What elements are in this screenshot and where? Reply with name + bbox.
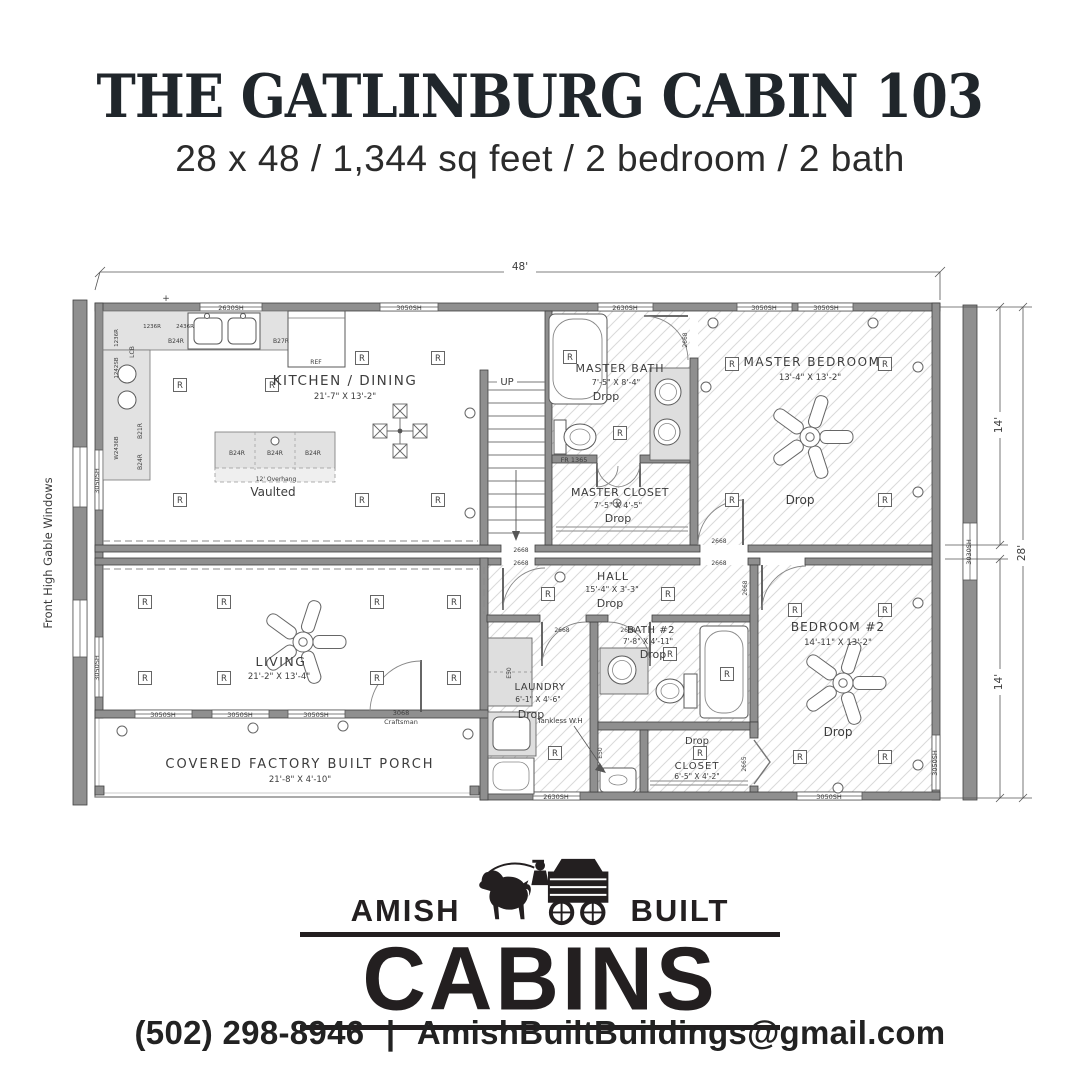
room-closet2-size: 6'-5" X 4'-2" xyxy=(674,772,719,781)
door-label: 2668 xyxy=(711,560,726,567)
room-kitchen-name: KITCHEN / DINING xyxy=(273,373,418,389)
front-door xyxy=(370,660,421,712)
staircase xyxy=(488,382,545,541)
door-label: 2668 xyxy=(682,332,689,347)
dim-lower-depth: 14' xyxy=(993,674,1005,690)
dim-total-depth: 28' xyxy=(1016,545,1028,561)
window-label: 3050SH xyxy=(396,304,422,312)
brand-logo: AMISH xyxy=(0,852,1080,1030)
front-door-style: Craftsman xyxy=(384,718,418,726)
front-door-size: 3068 xyxy=(393,709,410,717)
window-label: 2630SH xyxy=(612,304,638,312)
stairs-up: UP xyxy=(500,377,513,388)
cabinet-label: LCB xyxy=(129,346,136,358)
room-hall-name: HALL xyxy=(597,570,629,583)
cabinet-label: B24R xyxy=(267,450,283,457)
cabinet-label: REF xyxy=(310,359,322,366)
fan-light-kitchen xyxy=(373,404,427,458)
room-living-size: 21'-2" X 13'-4" xyxy=(248,672,310,682)
room-master-bath-name: MASTER BATH xyxy=(575,362,664,375)
room-laundry-size: 6'-1" X 4'-6" xyxy=(515,695,560,704)
window-label: 3050SH xyxy=(150,711,176,719)
room-kitchen-ceiling: Vaulted xyxy=(250,485,295,499)
logo-word-built: BUILT xyxy=(630,895,729,930)
door-label: 2668 xyxy=(742,580,749,595)
island-overhang-label: 12' Overhang xyxy=(256,476,297,483)
room-closet2-ceiling: Drop xyxy=(685,736,709,747)
window-label: 3050SH xyxy=(303,711,329,719)
window xyxy=(73,447,87,507)
window-label: 3050SH xyxy=(813,304,839,312)
label-fr: FR 1365 xyxy=(561,456,588,464)
flyer: THE GATLINBURG CABIN 103 28 x 48 / 1,344… xyxy=(0,0,1080,1080)
cabinet-label: B24R xyxy=(137,454,144,470)
page-title: THE GATLINBURG CABIN 103 xyxy=(97,62,983,132)
contact-line: (502) 298-8946 | AmishBuiltBuildings@gma… xyxy=(0,1014,1080,1052)
logo-word-amish: AMISH xyxy=(351,895,461,930)
dim-upper-depth: 14' xyxy=(993,417,1005,433)
door-label: 2665 xyxy=(741,756,748,771)
toilet xyxy=(564,424,596,450)
room-bedroom2-ceiling: Drop xyxy=(824,725,853,739)
cabinet-label: 1242SB xyxy=(114,357,120,378)
room-living-name: LIVING xyxy=(256,654,307,669)
room-master-bedroom-size: 13'-4" X 13'-2" xyxy=(779,373,841,383)
window-label: 3050SH xyxy=(93,468,101,494)
page-subtitle: 28 x 48 / 1,344 sq feet / 2 bedroom / 2 … xyxy=(0,138,1080,180)
dim-total-width: 48' xyxy=(512,261,528,273)
cabinet-label: B24R xyxy=(229,450,245,457)
cabinet-label: B27R xyxy=(273,338,289,345)
appliance-label: E50 xyxy=(597,747,604,759)
tankless-note: Tankless W.H xyxy=(536,717,582,725)
separator: | xyxy=(386,1014,396,1051)
tankless-water-heater xyxy=(600,768,636,792)
cabinet-label: B21R xyxy=(137,423,144,439)
window-label: 2630SH xyxy=(543,793,569,801)
window-label: 3050SH xyxy=(931,750,939,776)
room-bedroom2-name: BEDROOM #2 xyxy=(791,620,885,634)
door-label: 2668 xyxy=(513,547,528,554)
email-address: AmishBuiltBuildings@gmail.com xyxy=(417,1014,946,1051)
header: THE GATLINBURG CABIN 103 28 x 48 / 1,344… xyxy=(0,62,1080,180)
door-label: 2668 xyxy=(620,627,635,634)
room-master-bedroom-name: MASTER BEDROOM xyxy=(744,355,881,369)
window-label: 3030SH xyxy=(965,539,973,565)
room-kitchen-size: 21'-7" X 13'-2" xyxy=(314,392,376,402)
window-label: 3050SH xyxy=(227,711,253,719)
room-hall-size: 15'-4" X 3'-3" xyxy=(585,585,639,594)
window-label: 3050SH xyxy=(93,655,101,681)
horse-and-cabin-wagon-icon xyxy=(470,852,620,930)
cabinet-label: 1236R xyxy=(114,329,120,347)
room-master-bath-ceiling: Drop xyxy=(593,390,619,403)
room-closet2-name: CLOSET xyxy=(675,761,720,772)
room-bath2-size: 7'-8" X 4'-11" xyxy=(623,637,673,646)
door-label: 2668 xyxy=(711,538,726,545)
room-master-bath-size: 7'-5" X 8'-4" xyxy=(592,378,640,387)
logo-word-cabins: CABINS xyxy=(0,936,1080,1021)
room-master-bedroom-ceiling: Drop xyxy=(786,493,815,507)
cabinet-label: 2436R xyxy=(176,324,194,330)
appliance-label: E50 xyxy=(506,667,513,679)
room-master-closet-ceiling: Drop xyxy=(605,512,631,525)
cabinet-label: B24R xyxy=(305,450,321,457)
window-label: 3050SH xyxy=(816,793,842,801)
phone-number: (502) 298-8946 xyxy=(135,1014,365,1051)
window xyxy=(73,600,87,657)
room-hall-ceiling: Drop xyxy=(597,597,623,610)
plus-mark: + xyxy=(162,294,170,304)
window-label: 2630SH xyxy=(218,304,244,312)
door-label: 2668 xyxy=(554,627,569,634)
door-label: 2668 xyxy=(513,560,528,567)
cabinet-label: 1236R xyxy=(143,324,161,330)
floor-plan: R xyxy=(0,250,1080,850)
side-note: Front High Gable Windows xyxy=(41,477,55,628)
cabinet-label: B24R xyxy=(168,338,184,345)
room-master-closet-size: 7'-5" X 4'-5" xyxy=(594,501,642,510)
cabinet-label: W2436B xyxy=(114,436,120,459)
room-porch-size: 21'-8" X 4'-10" xyxy=(269,775,331,785)
room-bath2-ceiling: Drop xyxy=(640,648,666,661)
room-bedroom2-size: 14'-11" X 13'-2" xyxy=(804,638,872,648)
room-porch-name: COVERED FACTORY BUILT PORCH xyxy=(165,757,434,772)
window-label: 3050SH xyxy=(751,304,777,312)
bath2-toilet xyxy=(656,679,684,703)
room-master-closet-name: MASTER CLOSET xyxy=(571,486,669,499)
room-laundry-name: LAUNDRY xyxy=(514,682,565,693)
